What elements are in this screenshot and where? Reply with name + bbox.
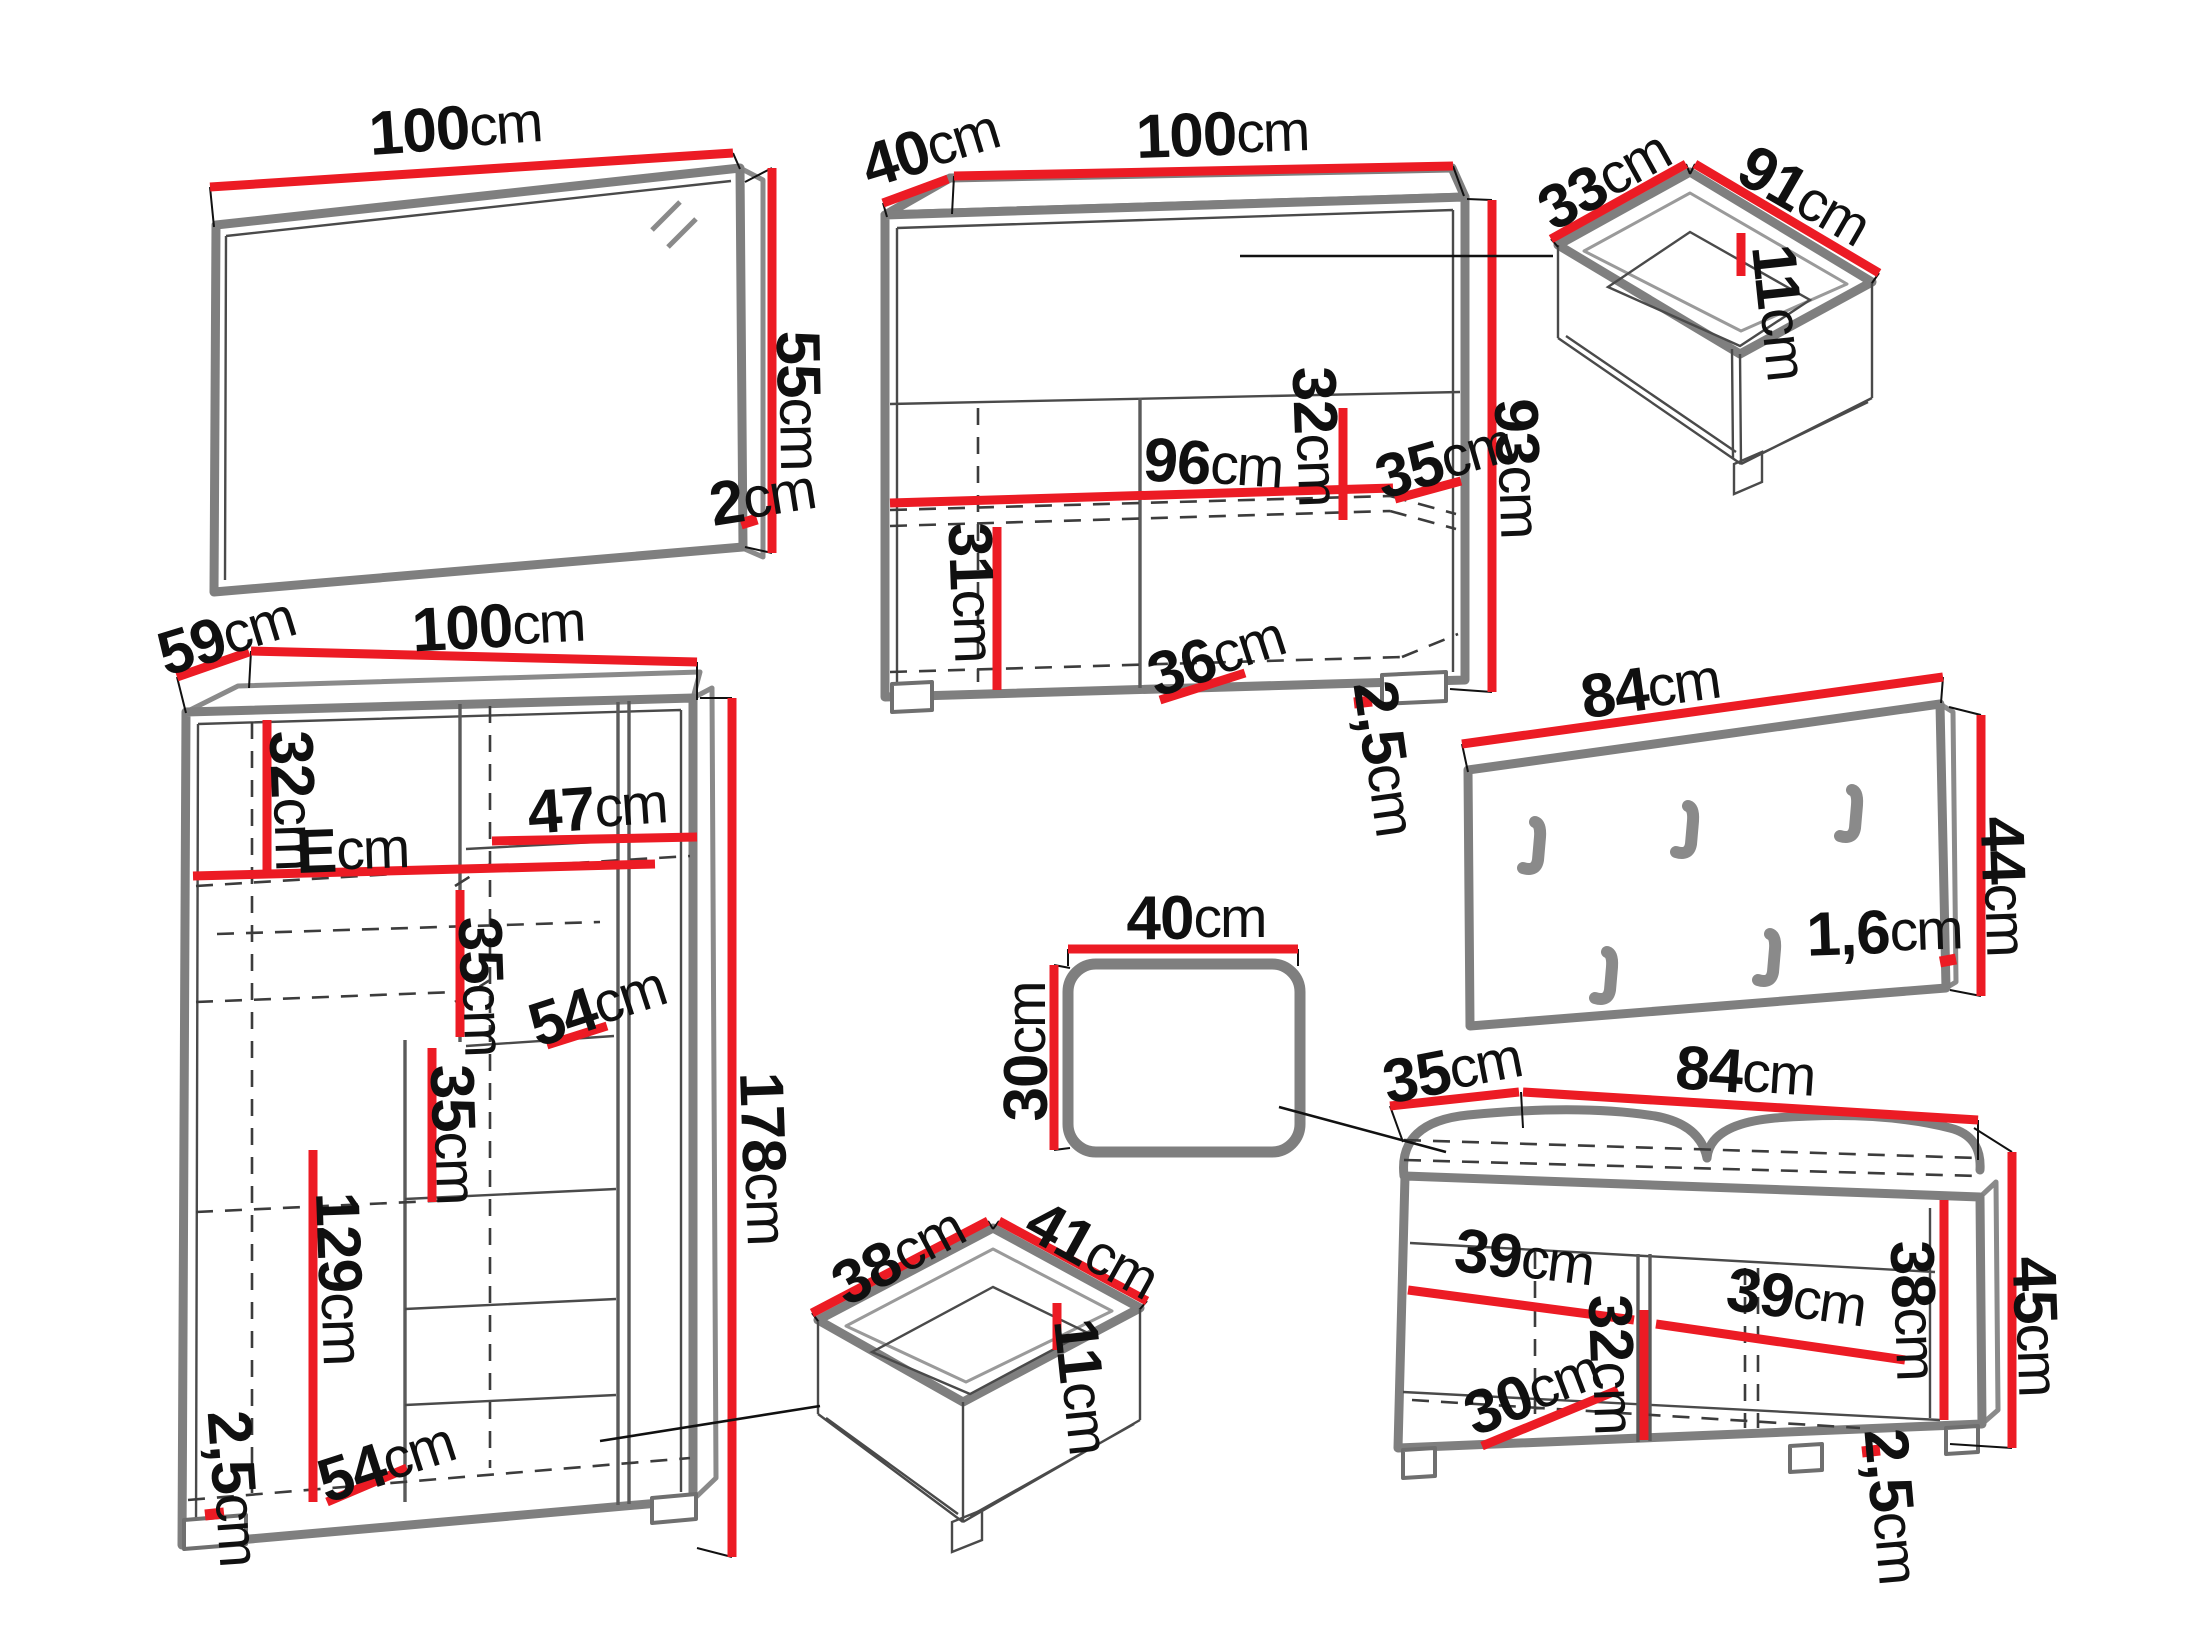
large-drawer-foot	[1734, 452, 1762, 494]
dim-wardrobe-plinth: 2,5cm	[194, 1408, 274, 1568]
dim-wardrobe-width: 100cm	[410, 587, 586, 665]
dim-bench-width: 84cm	[1673, 1033, 1816, 1112]
dim-sideboard-inner-width: 96cm	[1141, 425, 1284, 504]
dim-mirror-width: 100cm	[367, 88, 544, 169]
furniture-dimension-diagram: 100cm 55cm 2cm 40cm 100cm 96cm 32cm 35cm…	[0, 0, 2200, 1650]
sideboard: 40cm 100cm 96cm 32cm 35cm 93cm 31cm 36cm…	[853, 95, 1554, 840]
wardrobe-right-leg	[652, 1494, 696, 1523]
large-drawer: 33cm 91cm 11cm	[1527, 116, 1882, 494]
seat-cushion: 40cm 30cm	[992, 884, 1301, 1153]
dim-sideboard-height: 93cm	[1481, 397, 1555, 538]
dim-sideboard-upper-inner-height: 32cm	[1279, 365, 1353, 506]
dim-wardrobe-height: 178cm	[727, 1071, 802, 1246]
bench-middle-leg	[1790, 1444, 1822, 1472]
dim-wardrobe-hanging-height: 129cm	[303, 1191, 378, 1366]
dim-seat-cushion-depth: 30cm	[992, 983, 1061, 1122]
dim-sideboard-width: 100cm	[1135, 97, 1310, 172]
small-drawer: 38cm 41cm 11cm	[812, 1186, 1169, 1552]
dim-mirror-height: 55cm	[763, 330, 834, 470]
dim-seat-cushion-width: 40cm	[1127, 884, 1266, 953]
mirror: 100cm 55cm 2cm	[210, 88, 835, 592]
dim-wardrobe-upper-shelf: Ecm	[295, 814, 410, 887]
dim-sideboard-lower-inner-height: 31cm	[935, 521, 1009, 662]
dim-wardrobe-shelf-spacing-lower: 35cm	[417, 1063, 491, 1204]
coat-rack: 84cm 44cm 1,6cm	[1462, 644, 2041, 1026]
dim-small-drawer-height: 11cm	[1041, 1315, 1124, 1457]
sideboard-left-leg	[892, 682, 932, 712]
dim-wardrobe-shelf-width: 47cm	[525, 769, 668, 848]
bench-left-leg	[1403, 1448, 1435, 1478]
dim-bench-right-inner-height: 38cm	[1877, 1239, 1951, 1380]
dim-bench-plinth: 2,5cm	[1851, 1426, 1933, 1587]
shoe-bench: 35cm 84cm 39cm 39cm 32cm 38cm 30cm 2,5cm…	[1377, 1023, 2073, 1586]
bench-cushion-left	[1404, 1110, 1707, 1176]
dim-wardrobe-depth: 59cm	[149, 583, 302, 690]
dim-bench-depth: 35cm	[1377, 1023, 1527, 1117]
dim-coat-rack-thickness: 1,6cm	[1805, 895, 1963, 969]
mirror-front-panel	[214, 168, 743, 592]
bench-cushion-hidden-lines	[1404, 1140, 1978, 1176]
dim-large-drawer-height: 11cm	[1739, 241, 1822, 383]
dim-coat-rack-height: 44cm	[1967, 815, 2041, 956]
wardrobe: 59cm 100cm 32cm Ecm 47cm 35cm 54cm 35cm …	[149, 583, 801, 1568]
dim-bench-height: 45cm	[1999, 1255, 2073, 1396]
seat-cushion-shape	[1068, 964, 1300, 1152]
dim-coat-rack-width: 84cm	[1576, 644, 1723, 732]
bench-right-leg	[1946, 1426, 1978, 1454]
bench-cushion-right	[1707, 1116, 1980, 1170]
dim-wardrobe-shelf-spacing-upper: 35cm	[445, 915, 519, 1056]
